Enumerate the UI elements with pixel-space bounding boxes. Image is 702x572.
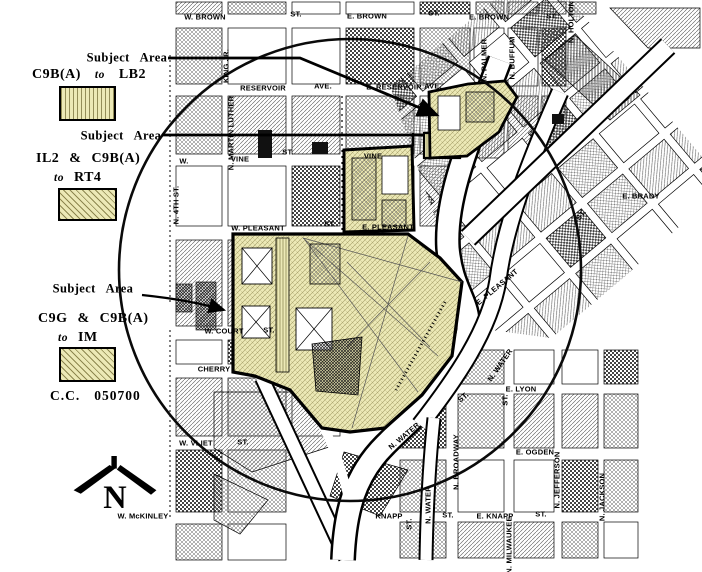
city-block [292, 28, 340, 84]
street-label: N. BROADWAY [452, 434, 461, 490]
city-block [604, 394, 638, 448]
street-label: E. RESERVOIR [366, 83, 422, 92]
street-label: ST. [282, 148, 293, 157]
north-letter: N [103, 480, 126, 514]
north-arrow-glyph: N [70, 452, 160, 514]
street-label: E. PLEASANT [362, 223, 414, 232]
city-block [176, 28, 222, 84]
street-label: W. PLEASANT [231, 224, 284, 233]
street-label: W. VLIET [179, 439, 213, 448]
city-block [176, 96, 222, 154]
street-label: ST. [263, 326, 274, 335]
zoning-map-page: W. BROWNST.E. BROWNST.E. BROWNST.RESERVO… [0, 0, 702, 572]
street-label: CHERRY [198, 365, 231, 374]
street-label: E. OGDEN [516, 448, 554, 457]
street-label: AVE. [314, 82, 332, 91]
north-arrow: N [70, 452, 160, 519]
city-block [664, 350, 702, 409]
city-block [176, 340, 222, 364]
city-block [562, 522, 598, 558]
city-block [514, 522, 554, 558]
city-block [514, 460, 554, 512]
street-label: RESERVOIR [240, 84, 286, 93]
street-label: ST. [324, 220, 335, 229]
street-label: E. BRADY [622, 192, 659, 201]
city-block [604, 350, 638, 384]
city-block [346, 28, 414, 84]
street-label: N. PALMER [480, 39, 489, 82]
city-block [605, 279, 665, 338]
city-block [635, 314, 695, 373]
street-label: VINE [364, 152, 382, 161]
city-block [604, 522, 638, 558]
street-label: ST. [237, 438, 248, 447]
city-block [228, 2, 286, 14]
street-label: N. JEFFERSON [553, 452, 562, 509]
street-label: ST. [501, 394, 510, 405]
street-label: N. MARTIN LUTHER [227, 96, 236, 170]
street-label: E. LYON [506, 385, 537, 394]
street-label: N. BUFFUM [508, 36, 517, 79]
city-block [176, 166, 222, 226]
street-label: KNAPP [375, 512, 402, 521]
street-label: N. JACKSON [598, 473, 607, 521]
street-label: N. WATER [424, 486, 433, 524]
city-block [604, 460, 638, 512]
city-block [458, 394, 504, 448]
city-block [228, 96, 286, 154]
city-block [688, 210, 702, 269]
street-label: AVE. [424, 82, 442, 91]
city-block [458, 460, 504, 512]
street-label: N. 4TH ST. [172, 186, 181, 225]
street-label: E. BROWN [469, 13, 509, 22]
city-block [514, 350, 554, 384]
city-block [562, 350, 598, 384]
city-block [676, 280, 702, 339]
street-label: ST. [535, 510, 546, 519]
city-block [228, 28, 286, 84]
street-label: ST. [442, 511, 453, 520]
street-label: E. BROWN [347, 12, 387, 21]
street-label: ST. [290, 10, 301, 19]
city-block [176, 524, 222, 560]
city-block [228, 166, 286, 226]
street-label: ST. [405, 518, 414, 529]
city-block [562, 460, 598, 512]
city-block [562, 394, 598, 448]
street-label: N. MILWAUKEE [505, 516, 514, 572]
city-block [514, 394, 554, 448]
street-label: KING JR. [222, 49, 231, 83]
city-block [292, 166, 340, 226]
street-label: W. COURT [204, 327, 243, 336]
street-label: ST. [428, 9, 439, 18]
city-block [458, 522, 504, 558]
street-label: W. BROWN [184, 13, 226, 22]
north-apex-tick [111, 456, 116, 469]
street-label: W. [179, 157, 188, 166]
street-label: N. HOLTON [567, 1, 576, 43]
street-label: ST. [546, 12, 557, 21]
city-block [647, 244, 702, 303]
